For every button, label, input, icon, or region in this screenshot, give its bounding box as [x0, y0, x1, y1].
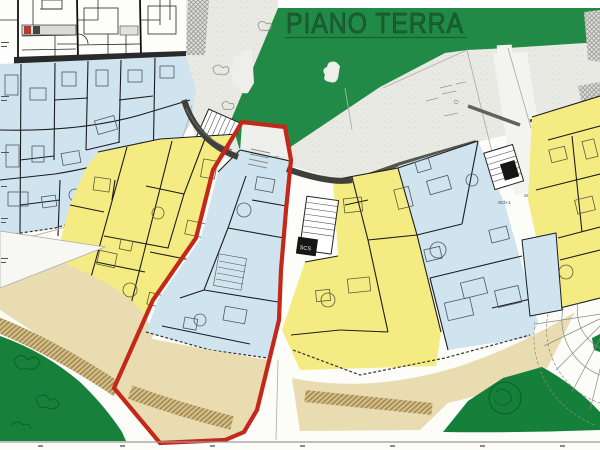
svg-text:SCb-1: SCb-1 [498, 200, 511, 205]
svg-text:PIANO TERRA: PIANO TERRA [286, 8, 464, 40]
